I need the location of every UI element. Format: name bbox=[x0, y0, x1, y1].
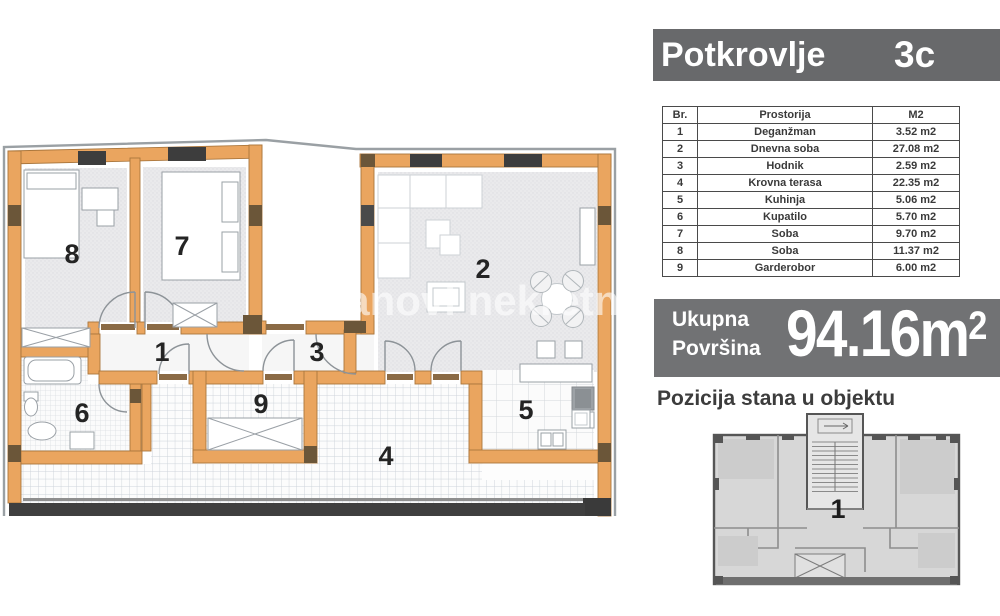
svg-text:6: 6 bbox=[74, 398, 89, 428]
svg-text:1: 1 bbox=[154, 337, 169, 367]
svg-text:7: 7 bbox=[174, 231, 189, 261]
svg-text:2: 2 bbox=[475, 254, 490, 284]
svg-text:1: 1 bbox=[830, 494, 845, 524]
svg-text:9: 9 bbox=[253, 389, 268, 419]
svg-text:8: 8 bbox=[64, 239, 79, 269]
svg-text:stanovi nekretni: stanovi nekretni bbox=[309, 277, 631, 324]
svg-text:3: 3 bbox=[309, 337, 324, 367]
svg-text:4: 4 bbox=[378, 441, 393, 471]
svg-text:5: 5 bbox=[518, 395, 533, 425]
